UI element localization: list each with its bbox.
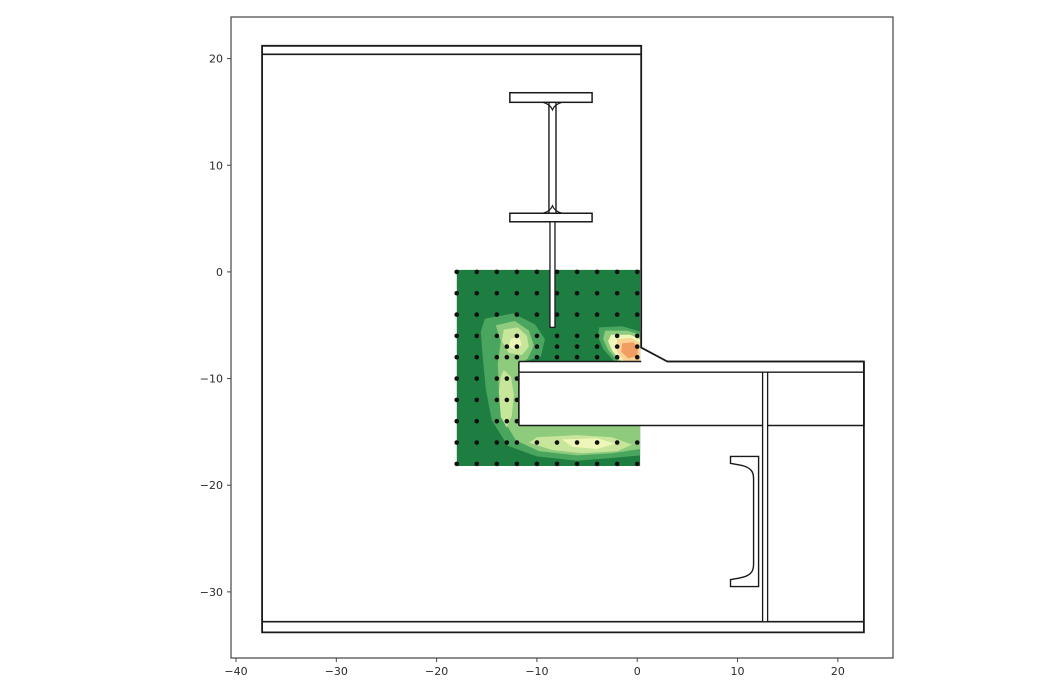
scatter-dot [555,344,560,349]
i-beam-bottom-flange [510,213,592,222]
web-plate [763,372,768,622]
scatter-dot [615,355,620,360]
scatter-dot [454,398,459,403]
scatter-dot [615,440,620,445]
scatter-dot [495,334,500,339]
scatter-dot [515,462,520,467]
scatter-dot [615,462,620,467]
scatter-dot [535,270,540,275]
scatter-dot [595,462,600,467]
scatter-dot [535,344,540,349]
scatter-dot [495,291,500,296]
y-tick-label: −10 [200,373,223,386]
beam-slab-fill [519,361,864,425]
x-tick-label: −40 [224,665,247,678]
y-tick-label: 10 [209,159,223,172]
scatter-dot [495,355,500,360]
scatter-dot [474,270,479,275]
scatter-dot [555,440,560,445]
scatter-dot [535,462,540,467]
scatter-dot [474,419,479,424]
scatter-dot [595,355,600,360]
scatter-dot [474,291,479,296]
scatter-dot [615,312,620,317]
y-tick-label: 0 [216,266,223,279]
beam-slab [519,361,864,425]
scatter-dot [575,291,580,296]
x-tick-label: 20 [831,665,845,678]
scatter-dot [454,419,459,424]
scatter-dot [505,344,510,349]
scatter-dot [635,344,640,349]
scatter-dot [474,376,479,381]
scatter-dot [535,291,540,296]
i-beam-web [549,102,556,213]
scatter-dot [495,398,500,403]
scatter-dot [575,462,580,467]
y-tick-label: −30 [200,586,223,599]
scatter-dot [575,270,580,275]
i-beam-top-flange [510,93,592,103]
scatter-dot [515,355,520,360]
scatter-dot [595,440,600,445]
scatter-dot [595,291,600,296]
scatter-dot [635,462,640,467]
scatter-dot [454,334,459,339]
scatter-dot [495,440,500,445]
embedded-plate [550,222,555,328]
x-tick-label: −30 [325,665,348,678]
scatter-dot [515,440,520,445]
scatter-dot [555,334,560,339]
contour-structural-plot: −40−30−20−100102020100−10−20−30 [0,0,1050,700]
scatter-dot [575,440,580,445]
scatter-dot [474,398,479,403]
scatter-dot [505,355,510,360]
scatter-dot [515,312,520,317]
scatter-dot [505,376,510,381]
scatter-dot [575,334,580,339]
scatter-dot [495,376,500,381]
scatter-dot [474,462,479,467]
scatter-dot [454,270,459,275]
scatter-dot [595,312,600,317]
scatter-dot [515,344,520,349]
scatter-dot [635,270,640,275]
scatter-dot [595,270,600,275]
scatter-dot [535,312,540,317]
scatter-dot [635,440,640,445]
scatter-dot [454,312,459,317]
scatter-dot [615,270,620,275]
y-tick-label: −20 [200,479,223,492]
scatter-dot [575,355,580,360]
scatter-dot [635,355,640,360]
scatter-dot [595,334,600,339]
scatter-dot [454,291,459,296]
scatter-dot [495,270,500,275]
scatter-dot [635,291,640,296]
x-tick-label: −10 [525,665,548,678]
scatter-dot [474,355,479,360]
scatter-dot [495,312,500,317]
scatter-dot [495,419,500,424]
scatter-dot [575,344,580,349]
scatter-dot [454,440,459,445]
scatter-dot [454,376,459,381]
y-tick-label: 20 [209,53,223,66]
scatter-dot [615,291,620,296]
scatter-dot [635,312,640,317]
scatter-dot [474,312,479,317]
scatter-dot [454,355,459,360]
scatter-dot [535,355,540,360]
matplotlib-figure: −40−30−20−100102020100−10−20−30 [0,0,1050,700]
x-tick-label: −20 [425,665,448,678]
scatter-dot [615,334,620,339]
scatter-dot [635,334,640,339]
scatter-dot [555,462,560,467]
scatter-dot [515,291,520,296]
scatter-dot [595,344,600,349]
scatter-dot [615,344,620,349]
scatter-dot [505,419,510,424]
scatter-dot [505,440,510,445]
x-tick-label: 10 [731,665,745,678]
scatter-dot [575,312,580,317]
scatter-dot [515,334,520,339]
scatter-dot [454,462,459,467]
x-tick-label: 0 [634,665,641,678]
scatter-dot [535,440,540,445]
scatter-dot [495,462,500,467]
scatter-dot [474,440,479,445]
scatter-dot [535,334,540,339]
scatter-dot [515,270,520,275]
scatter-dot [474,334,479,339]
scatter-dot [505,398,510,403]
scatter-dot [555,355,560,360]
